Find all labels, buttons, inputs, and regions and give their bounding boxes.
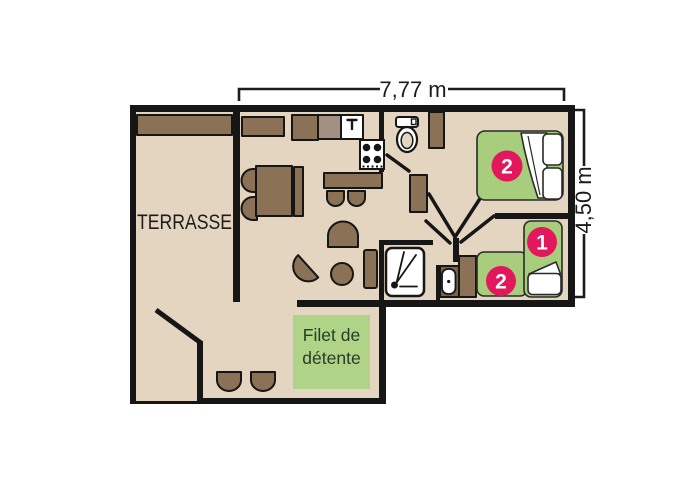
living-bench bbox=[364, 250, 377, 288]
bar-stool-1 bbox=[327, 191, 344, 206]
wall-deck-left bbox=[197, 341, 203, 404]
double-bed-pillow-1 bbox=[543, 134, 562, 165]
wall-terrace-left bbox=[130, 105, 136, 404]
double-bed-badge-count: 2 bbox=[501, 156, 513, 179]
terrace-chair-2 bbox=[251, 372, 275, 391]
wall-bathroom-top bbox=[379, 240, 433, 245]
kitchen-cabinet-2 bbox=[292, 115, 318, 140]
wall-bedroom-divider bbox=[495, 213, 575, 219]
wall-deck-bottom bbox=[197, 398, 386, 404]
kitchen-cabinet-1 bbox=[242, 117, 284, 136]
hall-cupboard bbox=[410, 175, 427, 212]
dining-chair-2 bbox=[242, 197, 258, 220]
terrace-chair-1 bbox=[217, 372, 241, 391]
single-bed-bottom-badge-count: 2 bbox=[495, 271, 507, 294]
wardrobe-bedroom1 bbox=[429, 112, 444, 148]
single-bed-right-badge-count: 1 bbox=[536, 232, 548, 255]
fridge bbox=[318, 115, 341, 139]
dining-chair-1 bbox=[242, 169, 258, 192]
double-bed-pillow-2 bbox=[543, 168, 562, 199]
single-bed-pillow bbox=[528, 274, 561, 295]
net-area-label-line1: Filet de bbox=[303, 325, 360, 345]
wall-terrace-divider bbox=[233, 105, 240, 302]
floor-plan-page: 7,77 m 4,50 m bbox=[0, 0, 700, 500]
wall-bathroom-left bbox=[379, 240, 384, 302]
shower-icon bbox=[386, 248, 424, 296]
bar-stool-2 bbox=[348, 191, 365, 206]
toilet-icon bbox=[396, 117, 418, 152]
dining-table bbox=[256, 166, 292, 216]
armchair bbox=[328, 222, 358, 248]
bar-counter bbox=[324, 173, 382, 188]
washbasin-icon bbox=[442, 269, 456, 294]
terrace-label: TERRASSE bbox=[137, 211, 232, 234]
bedroom2-cabinet bbox=[459, 256, 476, 297]
terrace-bench bbox=[137, 115, 232, 135]
coffee-table bbox=[331, 263, 353, 285]
wall-deck-right bbox=[379, 302, 386, 404]
width-dimension-label: 7,77 m bbox=[379, 77, 446, 102]
wall-right bbox=[568, 105, 575, 307]
floor-plan-drawing: 7,77 m 4,50 m bbox=[0, 0, 700, 500]
sideboard bbox=[294, 167, 303, 216]
stove bbox=[360, 140, 384, 169]
wall-top bbox=[130, 105, 575, 112]
net-area-label-line2: détente bbox=[302, 348, 360, 368]
wall-terrace-bottom bbox=[130, 401, 201, 404]
